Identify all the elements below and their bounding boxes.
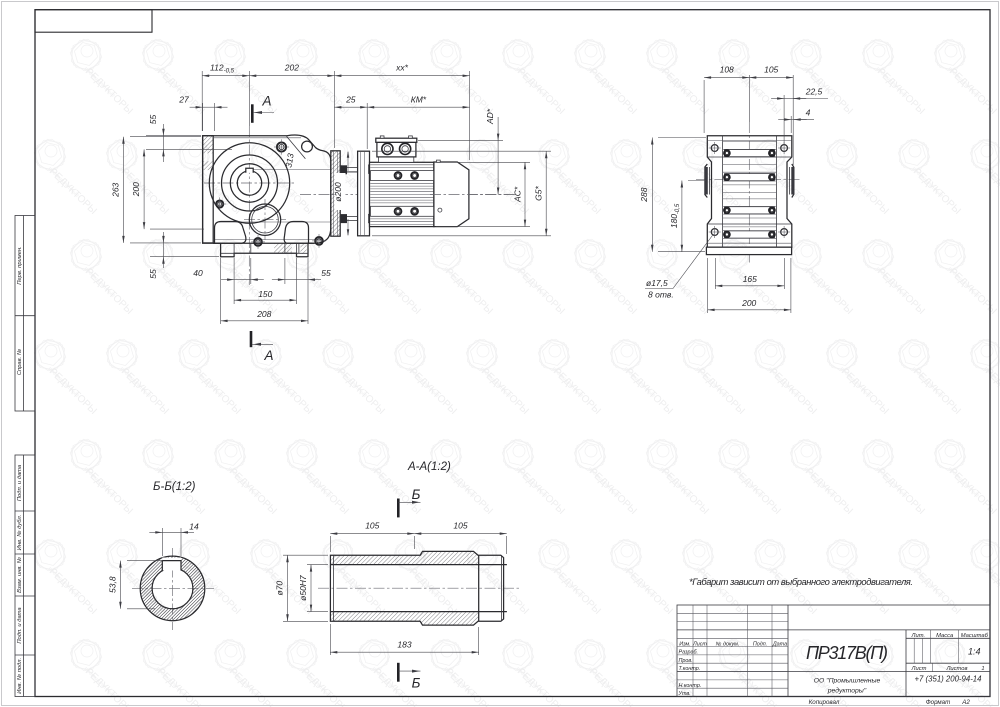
svg-text:Н.контр.: Н.контр.: [679, 683, 702, 689]
svg-text:G5*: G5*: [534, 185, 544, 200]
svg-text:AD*: AD*: [485, 108, 495, 125]
svg-text:Дата: Дата: [772, 641, 787, 647]
svg-text:150: 150: [258, 289, 272, 299]
svg-text:55: 55: [148, 269, 158, 279]
svg-text:Лист: Лист: [911, 666, 927, 672]
svg-text:202: 202: [284, 63, 299, 73]
svg-text:Инв. № подл.: Инв. № подл.: [17, 658, 23, 694]
svg-text:Утв.: Утв.: [678, 691, 691, 697]
svg-text:+7 (351) 200-94-14: +7 (351) 200-94-14: [915, 675, 983, 684]
svg-text:ø200: ø200: [333, 182, 343, 202]
svg-text:53,8: 53,8: [107, 576, 117, 593]
svg-text:108: 108: [720, 64, 734, 74]
svg-text:Копировал: Копировал: [809, 699, 840, 706]
svg-text:1:4: 1:4: [968, 647, 981, 657]
svg-text:А: А: [261, 94, 271, 109]
svg-text:Т.контр.: Т.контр.: [679, 666, 701, 672]
svg-text:ø17,5: ø17,5: [646, 278, 668, 288]
svg-text:Лист: Лист: [692, 641, 707, 647]
svg-text:ø50Н7: ø50Н7: [298, 575, 308, 601]
svg-text:А: А: [263, 348, 273, 363]
svg-text:55: 55: [321, 268, 331, 278]
svg-text:165: 165: [743, 274, 757, 284]
svg-text:Масштаб: Масштаб: [961, 633, 989, 639]
svg-text:208: 208: [256, 309, 271, 319]
svg-text:Б: Б: [412, 487, 421, 502]
svg-text:Инв. № дубл.: Инв. № дубл.: [17, 515, 23, 551]
svg-text:Изм.: Изм.: [679, 641, 691, 647]
svg-text:Взам. инв. №: Взам. инв. №: [17, 557, 23, 593]
svg-text:55: 55: [148, 115, 158, 125]
svg-text:КМ*: КМ*: [411, 95, 427, 105]
svg-text:А-А(1:2): А-А(1:2): [407, 461, 451, 473]
svg-text:14: 14: [189, 522, 199, 532]
svg-text:Справ. №: Справ. №: [17, 349, 23, 375]
svg-text:А2: А2: [961, 699, 970, 706]
svg-text:200: 200: [131, 182, 141, 197]
svg-text:Б-Б(1:2): Б-Б(1:2): [153, 481, 196, 493]
svg-text:40: 40: [193, 268, 203, 278]
svg-text:Подп.: Подп.: [753, 641, 767, 647]
svg-text:25: 25: [345, 95, 356, 105]
svg-text:Б: Б: [412, 676, 421, 691]
svg-text:xx*: xx*: [395, 63, 409, 73]
svg-text:№ докум.: № докум.: [716, 641, 740, 647]
svg-text:Перв. примен.: Перв. примен.: [17, 246, 23, 285]
svg-text:288: 288: [639, 187, 649, 202]
svg-text:ø70: ø70: [275, 581, 285, 596]
svg-text:редукторы": редукторы": [827, 686, 867, 694]
svg-text:183: 183: [397, 640, 411, 650]
svg-text:Разраб.: Разраб.: [679, 650, 699, 656]
svg-text:Пров.: Пров.: [679, 658, 693, 664]
svg-text:4: 4: [806, 108, 811, 118]
svg-text:ОО "Промышленные: ОО "Промышленные: [814, 677, 881, 684]
svg-text:Подп. и дата: Подп. и дата: [17, 464, 23, 501]
svg-text:105: 105: [365, 521, 379, 531]
svg-text:105: 105: [764, 64, 778, 74]
svg-text:Подп. и дата: Подп. и дата: [17, 607, 23, 644]
svg-text:22,5: 22,5: [805, 87, 823, 97]
svg-text:105: 105: [453, 521, 467, 531]
svg-text:Формат: Формат: [926, 699, 951, 706]
svg-text:1: 1: [981, 666, 984, 672]
svg-text:200: 200: [741, 298, 756, 308]
svg-text:Листов: Листов: [945, 666, 967, 672]
svg-text:Масса: Масса: [936, 633, 954, 639]
svg-text:ПР317В(П): ПР317В(П): [806, 643, 888, 663]
svg-text:263: 263: [110, 182, 120, 197]
svg-text:8 отв.: 8 отв.: [648, 290, 674, 300]
svg-text:*Габарит зависит от выбранного: *Габарит зависит от выбранного электродв…: [689, 576, 913, 587]
svg-text:Лит.: Лит.: [911, 633, 926, 639]
svg-text:27: 27: [178, 95, 189, 105]
svg-text:AC*: AC*: [513, 186, 523, 203]
